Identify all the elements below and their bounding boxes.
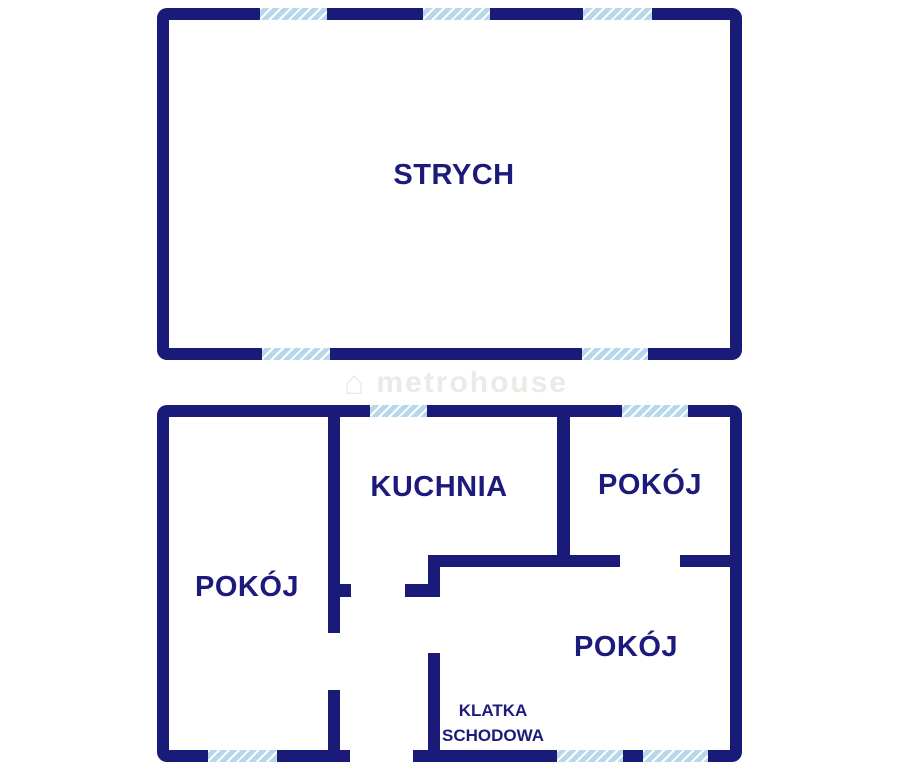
window-marker (643, 750, 708, 762)
window-marker (557, 750, 623, 762)
stairwell-opening (350, 750, 413, 762)
window-marker (370, 405, 427, 417)
room-label-pokoj-left: POKÓJ (167, 572, 327, 604)
wall (340, 584, 351, 597)
wall (557, 405, 570, 567)
room-label-strych: STRYCH (354, 160, 554, 192)
window-marker (423, 8, 490, 20)
window-marker (260, 8, 327, 20)
window-marker (582, 348, 648, 360)
wall (328, 690, 340, 762)
room-label-pokoj-top-right: POKÓJ (570, 470, 730, 502)
window-marker (622, 405, 688, 417)
house-icon: ⌂ (344, 366, 367, 400)
window-marker (583, 8, 652, 20)
window-marker (208, 750, 277, 762)
watermark-text: metrohouse (376, 366, 568, 400)
room-label-pokoj-bottom: POKÓJ (546, 632, 706, 664)
watermark: ⌂ metrohouse (0, 363, 912, 403)
floor-plan-canvas: STRYCH ⌂ metrohouse POKÓJ KUCHNIA POKÓJ … (0, 0, 912, 768)
wall (328, 405, 340, 633)
wall (680, 555, 730, 567)
room-label-klatka-schodowa: KLATKA SCHODOWA (423, 698, 563, 748)
room-label-kuchnia: KUCHNIA (339, 472, 539, 504)
window-marker (262, 348, 330, 360)
wall (428, 555, 620, 567)
